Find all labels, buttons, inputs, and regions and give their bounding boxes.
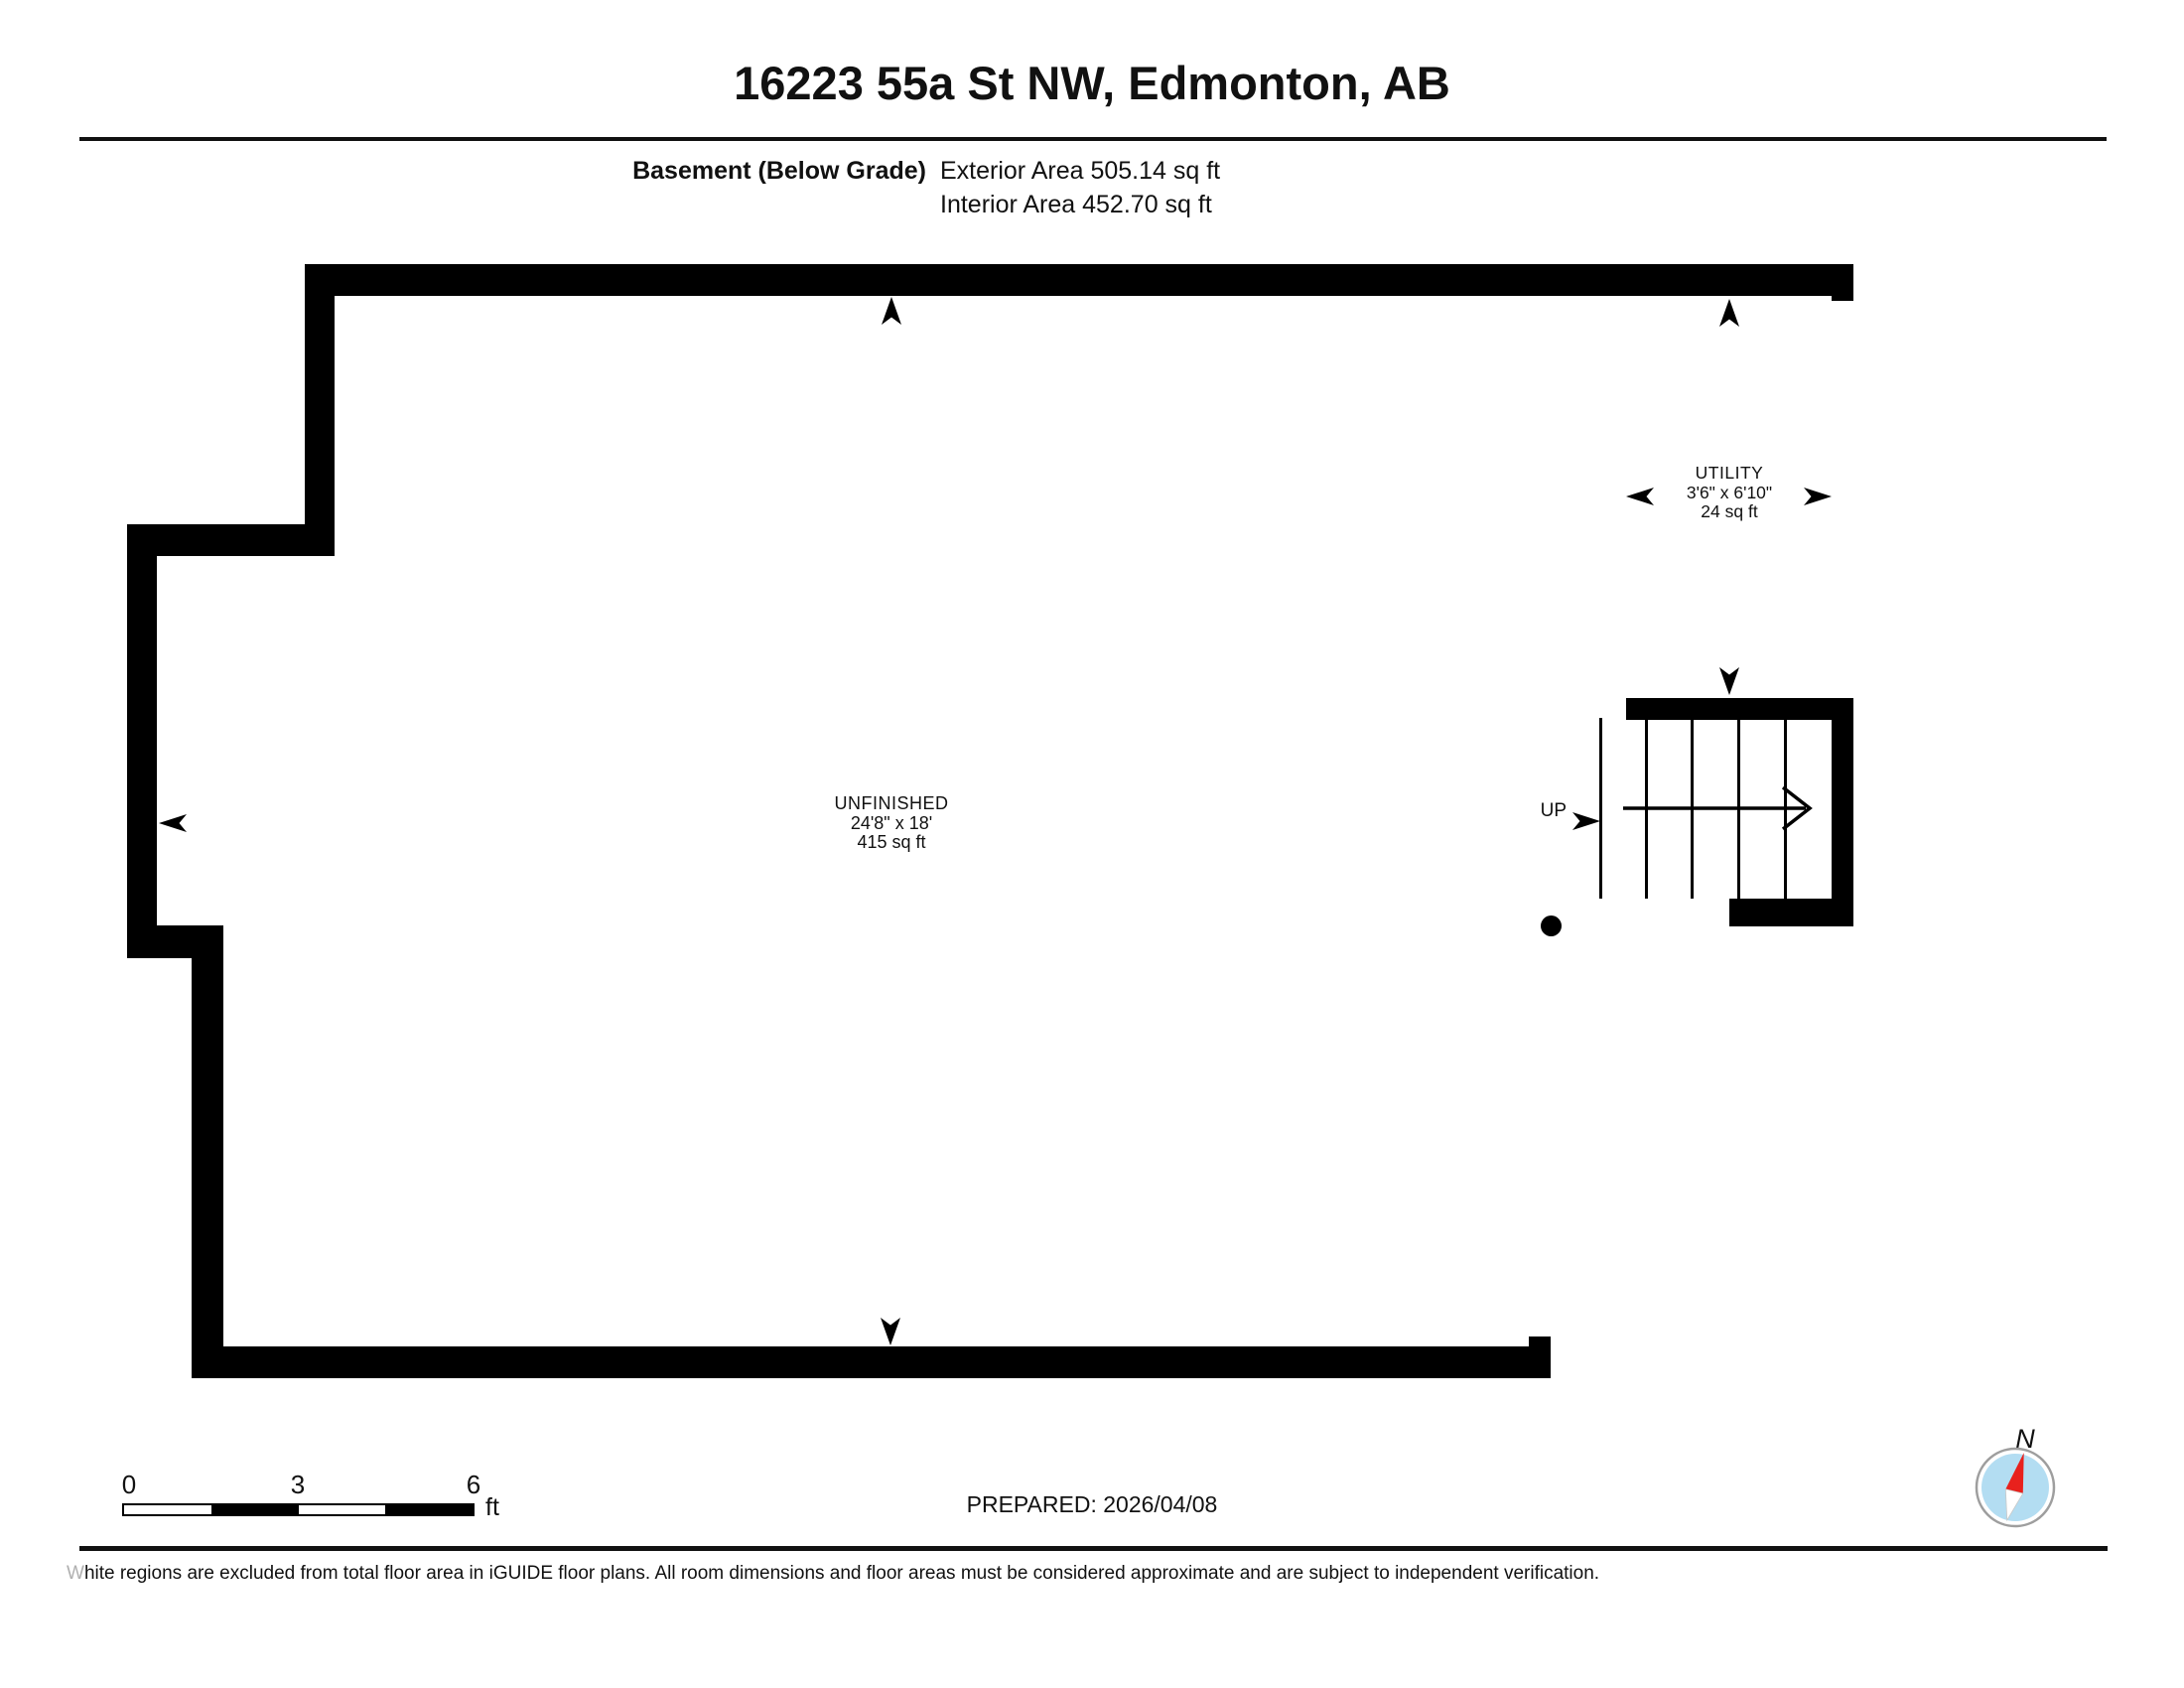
compass-icon: N xyxy=(1964,1412,2073,1536)
room-name: UNFINISHED xyxy=(743,794,1040,814)
area-summary: Exterior Area 505.14 sq ft Interior Area… xyxy=(940,154,1220,221)
stairwell-wall-right xyxy=(1832,698,1853,926)
marker-arrow-down-icon xyxy=(1719,667,1739,695)
marker-arrow-down-icon xyxy=(881,1318,900,1345)
exterior-area: Exterior Area 505.14 sq ft xyxy=(940,154,1220,188)
stair-up-label: UP xyxy=(1489,800,1567,822)
room-area: 24 sq ft xyxy=(1630,502,1829,522)
stair-edge-line xyxy=(1599,718,1602,899)
wall-top-right-notch xyxy=(1832,294,1853,301)
wall-left-step-upper xyxy=(127,524,335,556)
marker-arrow-left-icon xyxy=(159,814,187,832)
stairwell-wall-top xyxy=(1626,698,1853,720)
disclaimer-body: hite regions are excluded from total flo… xyxy=(84,1563,1599,1584)
wall-bottom-right-notch xyxy=(1529,1336,1551,1348)
floor-label: Basement (Below Grade) xyxy=(397,154,926,188)
wall-upper-left-vertical xyxy=(305,264,335,556)
wall-bottom xyxy=(192,1346,1551,1378)
marker-arrow-up-icon xyxy=(1719,299,1739,327)
room-name: UTILITY xyxy=(1630,464,1829,484)
stair-up-arrow-icon xyxy=(1621,784,1820,832)
wall-left-vertical xyxy=(127,524,157,958)
interior-area: Interior Area 452.70 sq ft xyxy=(940,188,1220,221)
up-label-arrow-icon xyxy=(1572,812,1600,830)
wall-lower-left-vertical xyxy=(192,925,223,1378)
marker-arrow-up-icon xyxy=(882,297,901,325)
room-area: 415 sq ft xyxy=(743,833,1040,853)
room-dimensions: 24'8" x 18' xyxy=(743,814,1040,834)
page-title: 16223 55a St NW, Edmonton, AB xyxy=(0,56,2184,110)
floor-plan-page: 16223 55a St NW, Edmonton, AB Basement (… xyxy=(0,0,2184,1688)
room-label-unfinished: UNFINISHED 24'8" x 18' 415 sq ft xyxy=(743,794,1040,853)
room-dimensions: 3'6" x 6'10" xyxy=(1630,484,1829,503)
disclaimer-lead: W xyxy=(67,1563,84,1584)
header-divider xyxy=(79,137,2107,141)
prepared-date: PREPARED: 2026/04/08 xyxy=(0,1491,2184,1518)
wall-top xyxy=(305,264,1853,296)
disclaimer-text: White regions are excluded from total fl… xyxy=(67,1563,1599,1585)
stairwell-wall-bottom xyxy=(1729,899,1853,926)
footer-divider xyxy=(79,1546,2108,1551)
room-label-utility: UTILITY 3'6" x 6'10" 24 sq ft xyxy=(1630,464,1829,522)
stair-landing-dot xyxy=(1541,915,1562,936)
